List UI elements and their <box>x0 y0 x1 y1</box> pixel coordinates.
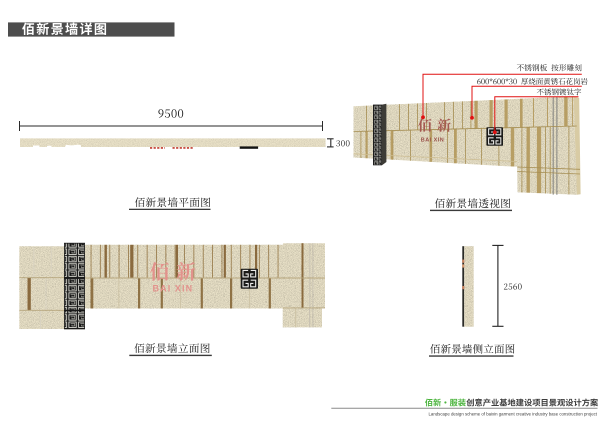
svg-text:Landscape design scheme of bai: Landscape design scheme of baixin garmen… <box>429 411 598 416</box>
svg-text:BAI XIN: BAI XIN <box>153 283 194 293</box>
svg-text:BAI XIN: BAI XIN <box>421 138 444 144</box>
